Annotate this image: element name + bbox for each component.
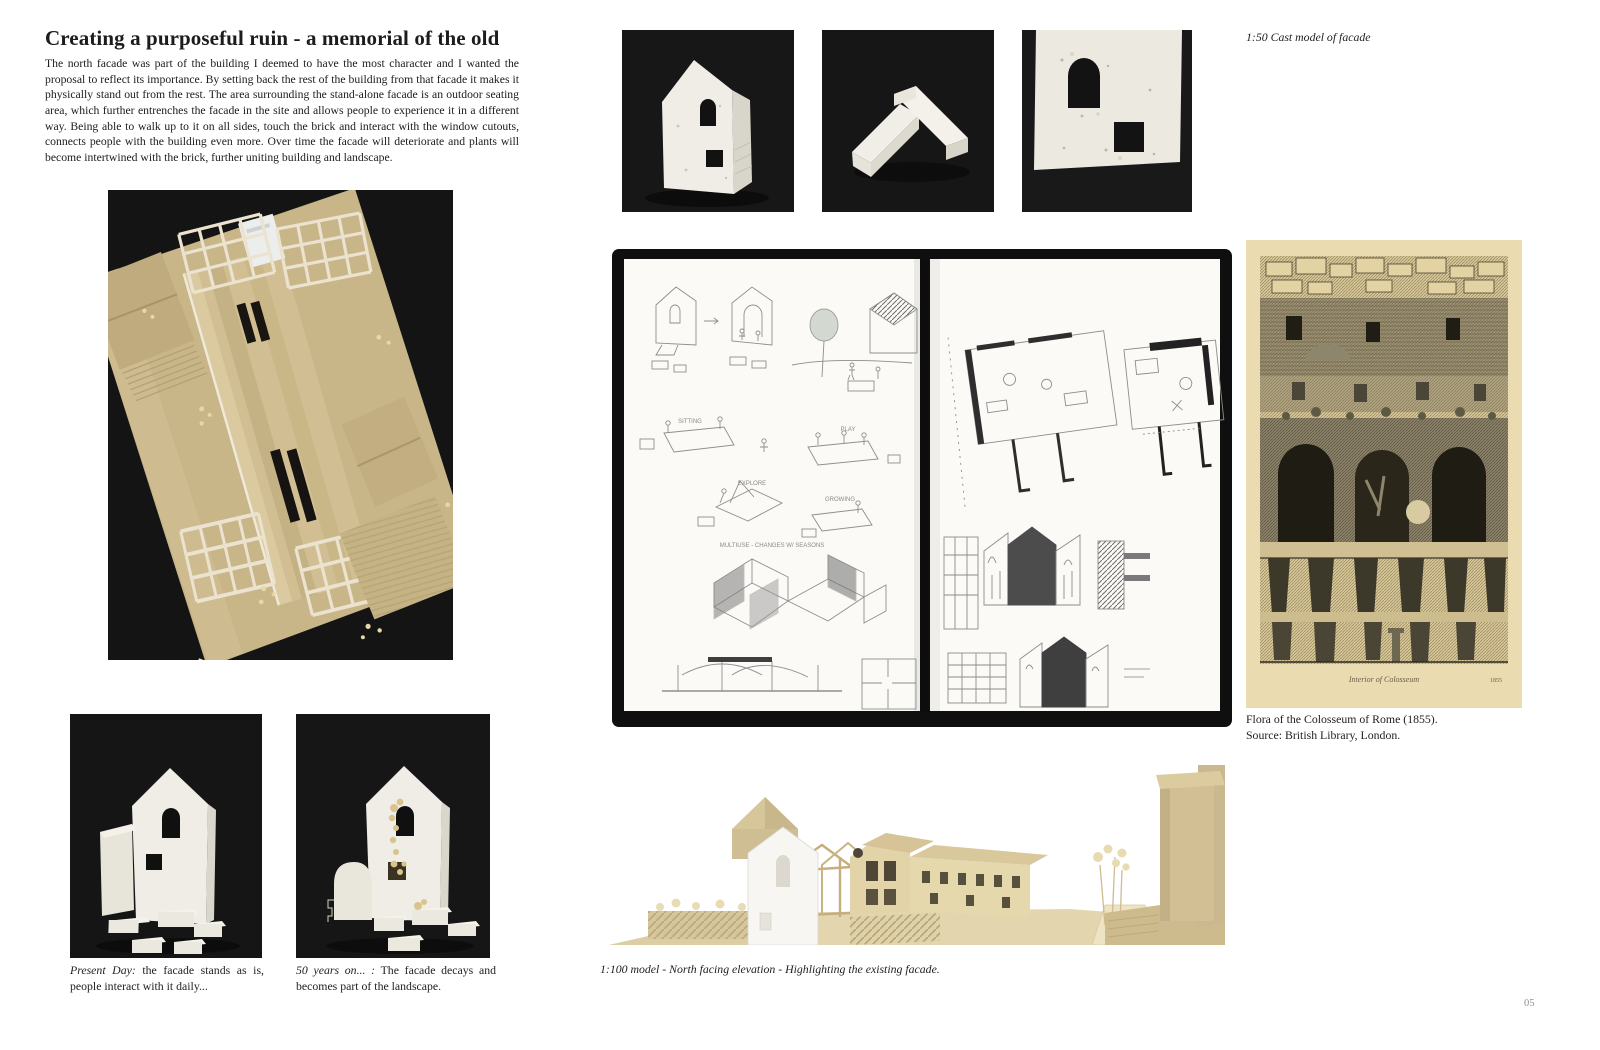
portfolio-page: Creating a purposeful ruin - a memorial …: [0, 0, 1600, 1050]
intro-section: Creating a purposeful ruin - a memorial …: [45, 26, 519, 166]
etching-handwritten-caption: Interior of Colosseum: [1348, 675, 1419, 684]
sketchbook-illustration: SITTING PLAY EXPLORE GROWING MULTIUSE - …: [612, 245, 1232, 730]
aerial-site-model-illustration: [108, 190, 453, 660]
photo-fifty-years-model: [296, 714, 490, 958]
caption-cast-model: 1:50 Cast model of facade: [1246, 30, 1546, 46]
photo-present-day-model: [70, 714, 262, 958]
photo-cast-model-perspective: [622, 30, 794, 212]
fifty-years-model-illustration: [296, 714, 490, 958]
svg-text:SITTING: SITTING: [678, 419, 702, 425]
caption-colosseum-line2: Source: British Library, London.: [1246, 728, 1536, 744]
svg-text:PLAY: PLAY: [841, 427, 856, 433]
caption-colosseum: Flora of the Colosseum of Rome (1855). S…: [1246, 712, 1536, 744]
photo-cast-facade-closeup: [1022, 30, 1192, 212]
elevation-model-illustration: [600, 745, 1225, 945]
cast-model-perspective-illustration: [622, 30, 794, 212]
page-title: Creating a purposeful ruin - a memorial …: [45, 26, 519, 51]
colosseum-etching-illustration: Interior of Colosseum 1855: [1246, 240, 1522, 708]
svg-text:GROWING: GROWING: [825, 497, 855, 503]
intro-paragraph: The north facade was part of the buildin…: [45, 56, 519, 166]
caption-present-day: Present Day: the facade stands as is, pe…: [70, 963, 264, 995]
sketchbook-spread: SITTING PLAY EXPLORE GROWING MULTIUSE - …: [612, 245, 1232, 730]
svg-text:EXPLORE: EXPLORE: [738, 481, 766, 487]
svg-text:MULTIUSE - CHANGES W/ SEASONS: MULTIUSE - CHANGES W/ SEASONS: [720, 543, 825, 549]
photo-elevation-model: [600, 745, 1225, 945]
etching-year: 1855: [1490, 678, 1502, 684]
caption-fifty-years: 50 years on... : The facade decays and b…: [296, 963, 496, 995]
caption-fifty-years-label: 50 years on... :: [296, 963, 375, 977]
photo-aerial-site-model: [108, 190, 453, 660]
cast-facade-closeup-illustration: [1022, 30, 1192, 212]
caption-elevation-model: 1:100 model - North facing elevation - H…: [600, 962, 1120, 978]
page-number: 05: [1524, 998, 1535, 1009]
present-day-model-illustration: [70, 714, 262, 958]
cast-roof-pieces-illustration: [822, 30, 994, 212]
caption-colosseum-line1: Flora of the Colosseum of Rome (1855).: [1246, 712, 1536, 728]
photo-cast-roof-pieces: [822, 30, 994, 212]
colosseum-etching: Interior of Colosseum 1855: [1246, 240, 1522, 708]
caption-present-day-label: Present Day:: [70, 963, 136, 977]
